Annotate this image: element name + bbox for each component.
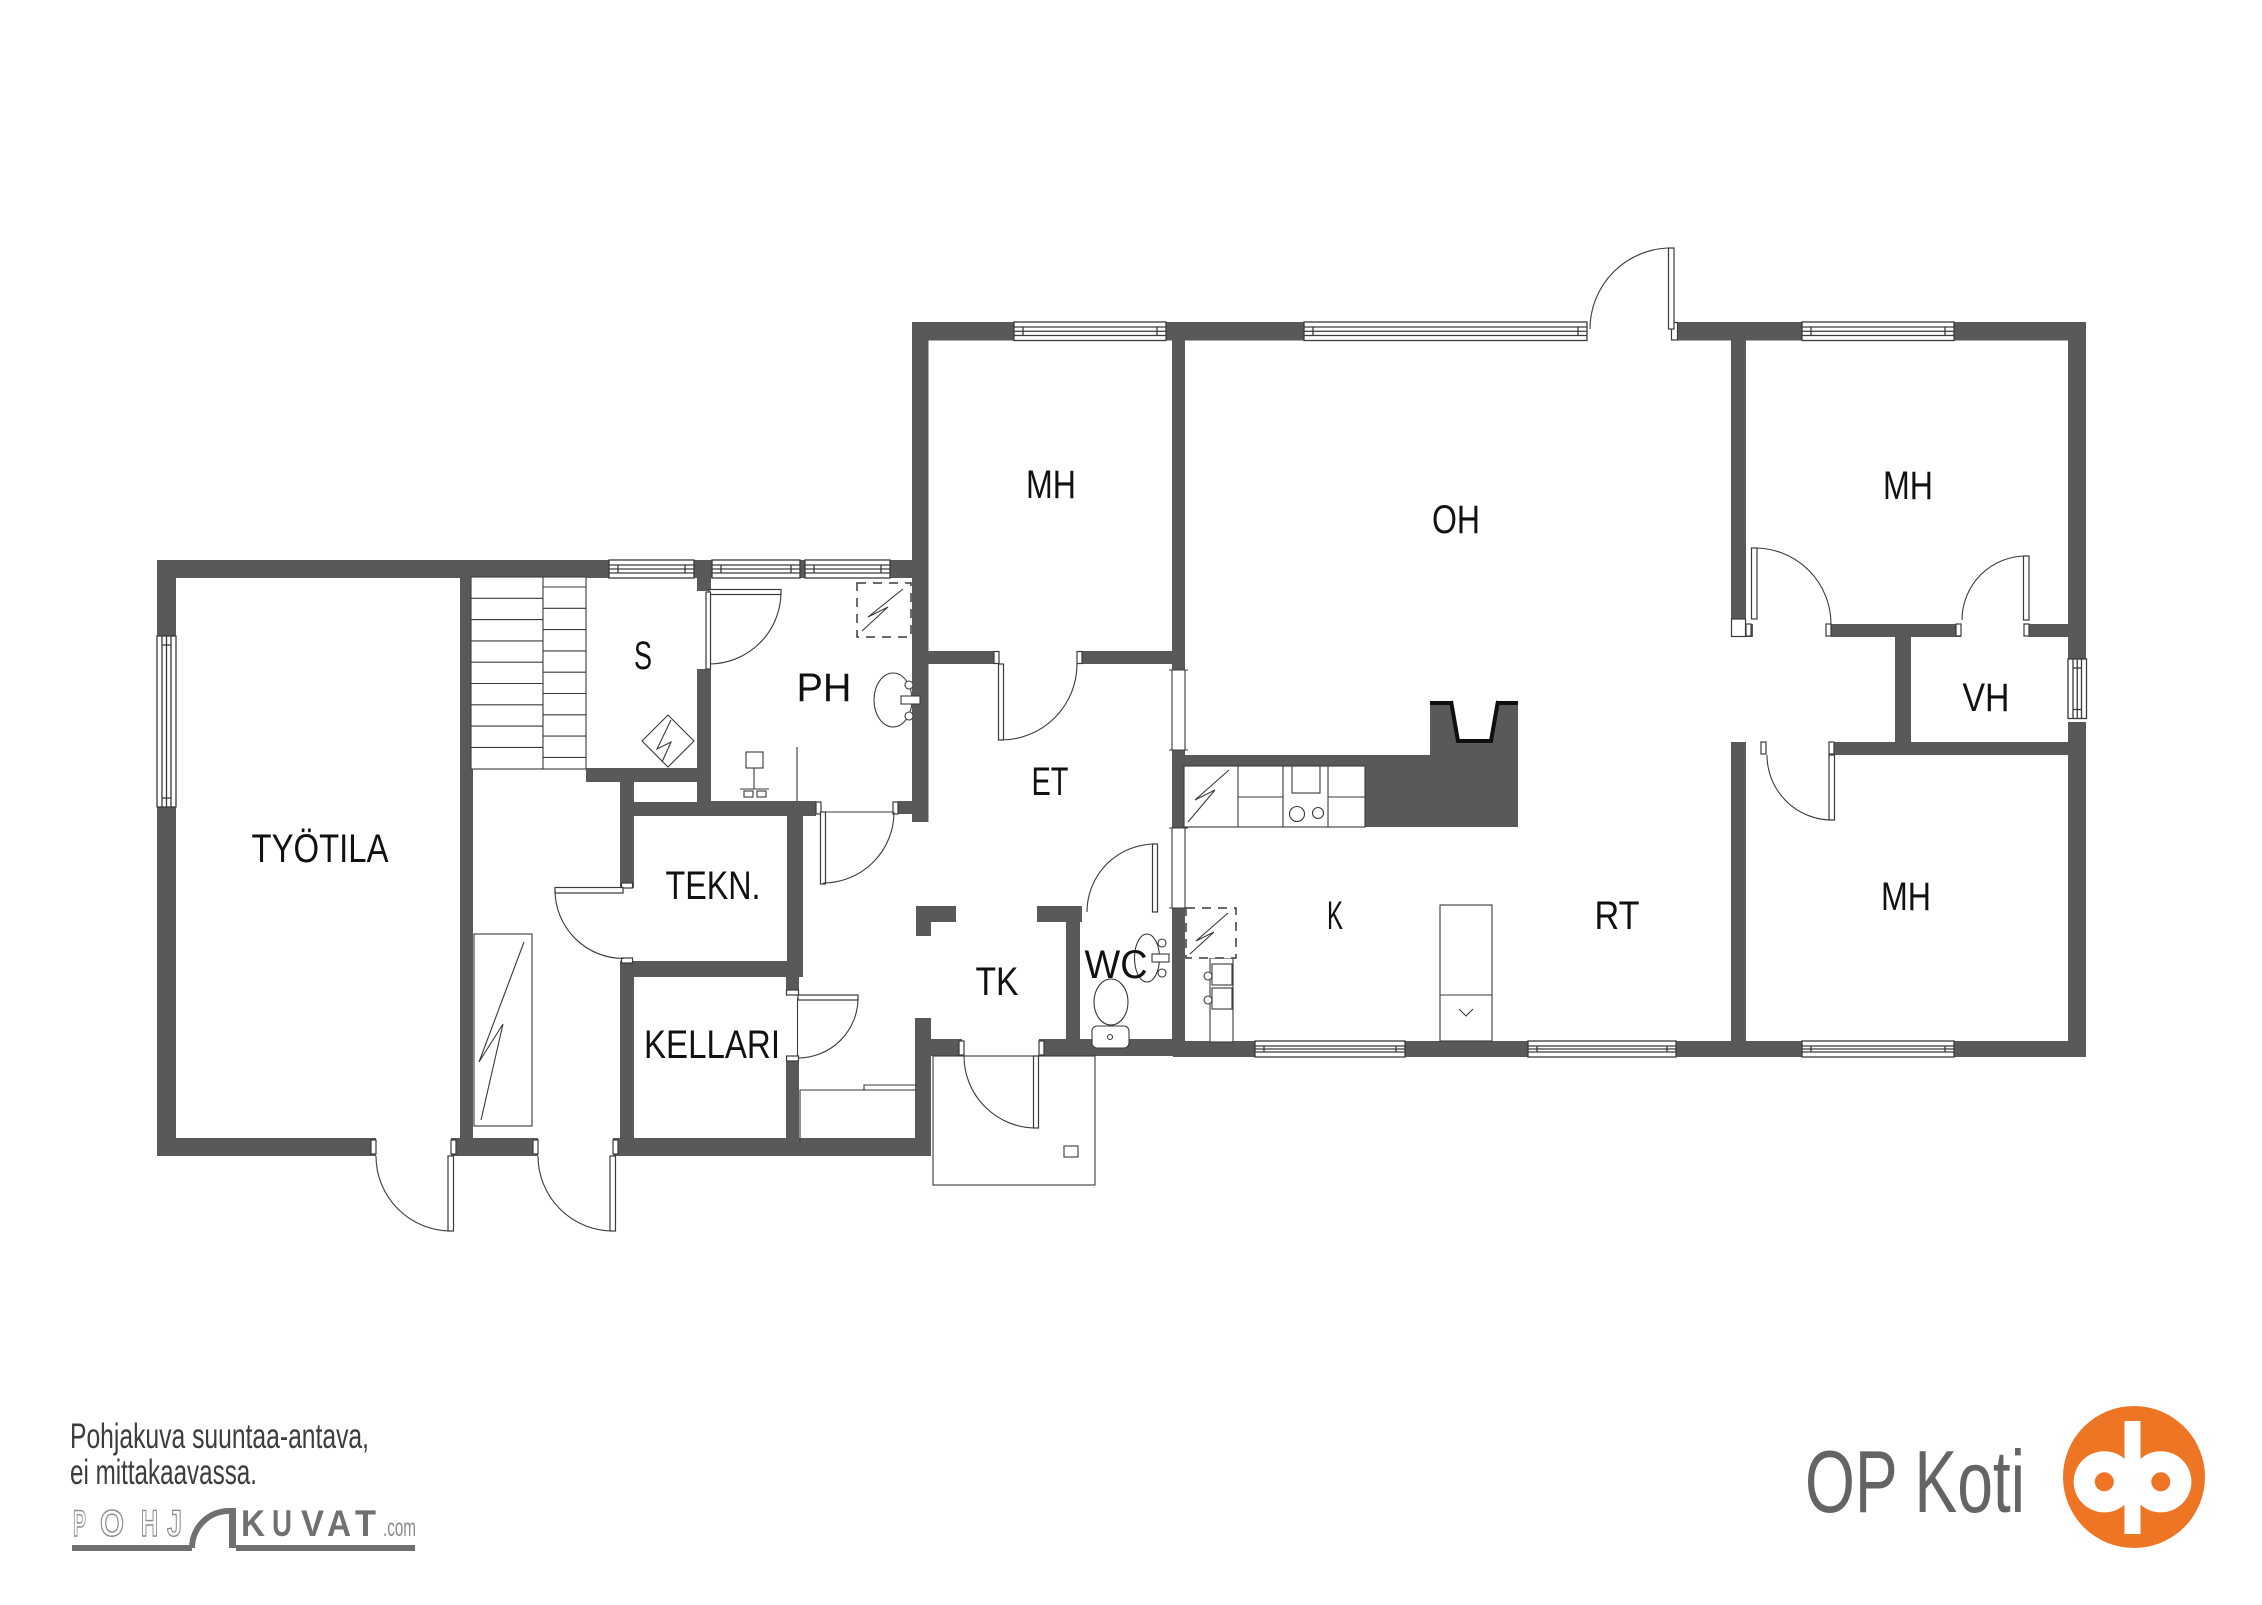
svg-text:U: U <box>272 1503 292 1544</box>
svg-text:RT: RT <box>1595 894 1640 938</box>
svg-text:KELLARI: KELLARI <box>644 1023 780 1067</box>
svg-text:MH: MH <box>1026 463 1076 507</box>
svg-text:OP Koti: OP Koti <box>1805 1432 2025 1531</box>
svg-text:T: T <box>355 1503 376 1544</box>
svg-text:.com: .com <box>383 1514 416 1542</box>
svg-text:VH: VH <box>1963 676 2010 720</box>
svg-text:A: A <box>327 1503 351 1544</box>
svg-text:K: K <box>1327 894 1343 938</box>
svg-text:TYÖTILA: TYÖTILA <box>252 827 389 871</box>
svg-text:MH: MH <box>1883 464 1933 508</box>
svg-text:WC: WC <box>1085 943 1148 987</box>
svg-text:ET: ET <box>1032 760 1069 804</box>
svg-text:Pohjakuva suuntaa-antava,: Pohjakuva suuntaa-antava, <box>70 1417 369 1456</box>
svg-text:O: O <box>100 1503 124 1544</box>
svg-text:PH: PH <box>797 666 852 710</box>
svg-text:TEKN.: TEKN. <box>666 864 761 908</box>
svg-text:ei mittakaavassa.: ei mittakaavassa. <box>70 1453 257 1492</box>
svg-text:H: H <box>141 1503 158 1544</box>
svg-text:OH: OH <box>1432 498 1480 542</box>
svg-text:V: V <box>301 1503 324 1544</box>
svg-text:J: J <box>167 1503 182 1544</box>
svg-text:P: P <box>73 1503 86 1544</box>
svg-text:S: S <box>634 634 652 678</box>
svg-text:TK: TK <box>976 960 1019 1004</box>
svg-text:K: K <box>241 1503 265 1544</box>
svg-text:MH: MH <box>1881 875 1931 919</box>
